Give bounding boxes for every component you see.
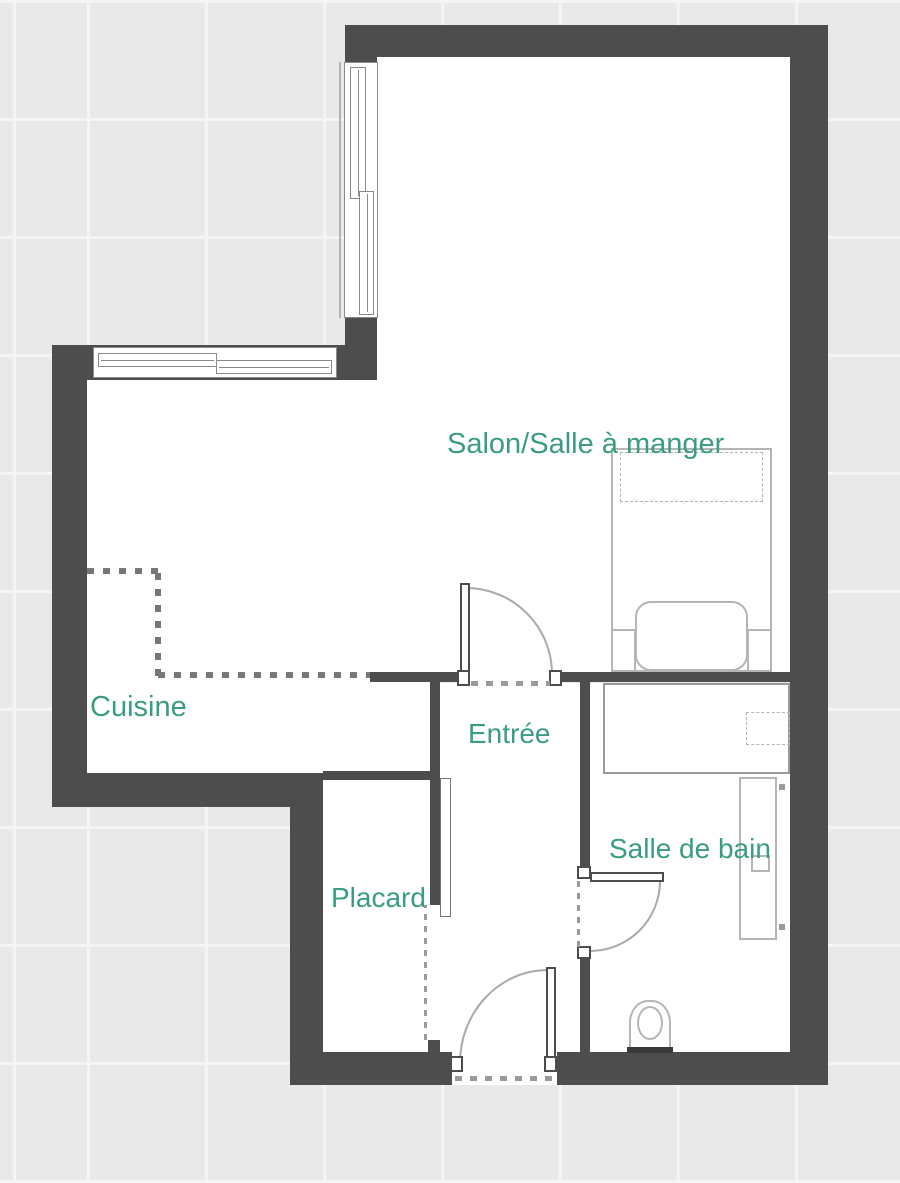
wall-entree-bain-lower — [580, 950, 590, 1052]
floor-gap-placard-door — [428, 905, 440, 1052]
shower-dot-bottom — [779, 924, 785, 930]
wall-cuisine-bottom — [52, 773, 323, 807]
window-sash-lower — [359, 191, 374, 315]
window-salon-icon — [344, 62, 378, 318]
wall-top — [345, 25, 828, 57]
door-entry-leaf — [546, 967, 556, 1064]
label-placard: Placard — [331, 883, 426, 912]
toilet-base — [627, 1047, 673, 1053]
wall-salon-south-right — [552, 672, 790, 682]
door-bain-leaf — [590, 872, 664, 882]
label-salon: Salon/Salle à manger — [447, 429, 724, 459]
sink-dashed-outline — [746, 712, 790, 745]
wall-bottom-right — [557, 1052, 790, 1085]
window-cuisine-icon — [93, 347, 337, 378]
label-cuisine: Cuisine — [90, 692, 187, 722]
window-sash-left — [98, 353, 217, 367]
cuisine-counter-dash-bottom — [158, 672, 370, 678]
toilet-bowl-inner — [637, 1006, 663, 1040]
window-sash-right — [216, 360, 332, 374]
door-salon-leaf — [460, 583, 470, 676]
cuisine-counter-dash-side — [155, 572, 161, 676]
door-placard-track-dash — [424, 905, 427, 1040]
label-salle-de-bain: Salle de bain — [609, 834, 771, 863]
label-entree: Entrée — [468, 719, 551, 748]
door-entry-threshold — [455, 1076, 556, 1081]
door-bain-opening-dash — [577, 879, 580, 947]
bed-post-left — [611, 629, 636, 672]
window-sill-salon — [339, 62, 341, 318]
bed-post-right — [747, 629, 772, 672]
wall-salon-south-left — [370, 672, 468, 682]
door-salon-jamb-left — [457, 670, 470, 686]
window-sash-upper — [350, 67, 366, 199]
wall-placard-top — [323, 771, 433, 780]
shower-dot-top — [779, 784, 785, 790]
bed-duvet — [635, 601, 748, 671]
door-salon-jamb-right — [549, 670, 562, 686]
wall-cuisine-left — [52, 345, 87, 807]
door-entry-jamb-left — [450, 1056, 463, 1072]
floor-gap-bain-door — [580, 877, 590, 950]
floor-placard — [323, 780, 430, 1052]
wall-placard-bottom-stub — [428, 1040, 440, 1052]
wall-right — [790, 25, 828, 1085]
floor-plan: Salon/Salle à manger Cuisine Entrée Plac… — [0, 0, 900, 1183]
door-bain-jamb-top — [577, 866, 591, 879]
door-entry-jamb-right — [544, 1056, 557, 1072]
door-bain-jamb-bottom — [577, 946, 591, 959]
cuisine-counter-dash-top — [87, 568, 159, 574]
door-placard-sliding-panel — [440, 778, 451, 917]
wall-entree-placard — [430, 682, 440, 905]
wall-placard-left — [290, 773, 323, 1085]
door-salon-threshold — [471, 681, 550, 686]
wall-entree-bain-upper — [580, 682, 590, 877]
